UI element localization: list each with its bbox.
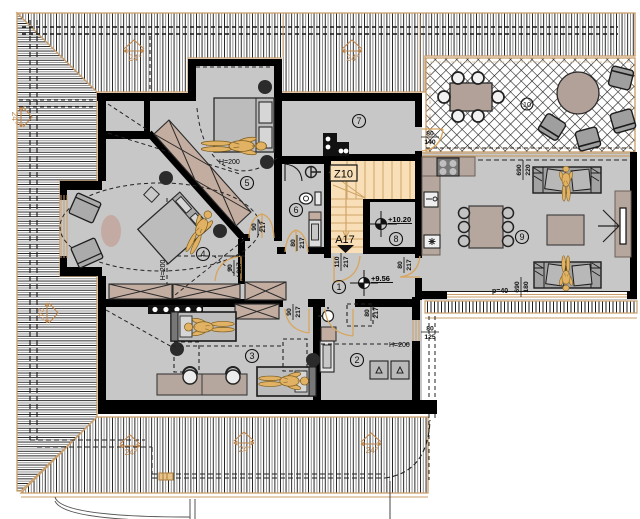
svg-text:3: 3 bbox=[249, 351, 254, 361]
svg-text:690: 690 bbox=[514, 281, 521, 293]
svg-text:H=200: H=200 bbox=[160, 259, 167, 280]
svg-text:80: 80 bbox=[426, 131, 434, 138]
svg-text:5: 5 bbox=[244, 178, 249, 188]
svg-text:220: 220 bbox=[525, 164, 532, 176]
svg-text:125: 125 bbox=[424, 334, 436, 341]
svg-text:Z10: Z10 bbox=[334, 169, 353, 181]
svg-text:9: 9 bbox=[519, 232, 524, 242]
svg-text:24°: 24° bbox=[128, 53, 142, 63]
svg-text:+9.56: +9.56 bbox=[371, 274, 390, 283]
svg-text:217: 217 bbox=[260, 221, 267, 233]
svg-text:10: 10 bbox=[523, 100, 531, 109]
svg-text:24°: 24° bbox=[346, 53, 360, 63]
svg-text:217: 217 bbox=[299, 237, 306, 249]
svg-text:24°: 24° bbox=[10, 112, 20, 125]
svg-text:217: 217 bbox=[373, 307, 380, 319]
svg-text:80: 80 bbox=[426, 326, 434, 333]
svg-text:p=40: p=40 bbox=[492, 288, 508, 295]
svg-text:217: 217 bbox=[236, 262, 243, 274]
svg-text:217: 217 bbox=[406, 259, 413, 271]
svg-text:80: 80 bbox=[397, 261, 404, 269]
svg-text:1: 1 bbox=[336, 282, 341, 292]
svg-text:24°: 24° bbox=[125, 447, 138, 457]
svg-text:H=200: H=200 bbox=[219, 159, 240, 166]
svg-text:180: 180 bbox=[523, 281, 530, 293]
svg-text:217: 217 bbox=[343, 256, 350, 268]
svg-text:2: 2 bbox=[354, 355, 359, 365]
svg-text:4: 4 bbox=[200, 249, 205, 259]
svg-text:217: 217 bbox=[295, 306, 302, 318]
svg-text:24°: 24° bbox=[239, 444, 252, 454]
svg-text:H=200: H=200 bbox=[389, 342, 410, 349]
svg-text:+10.20: +10.20 bbox=[388, 215, 411, 224]
svg-text:7: 7 bbox=[356, 116, 361, 126]
svg-text:80: 80 bbox=[290, 239, 297, 247]
svg-text:8: 8 bbox=[393, 234, 398, 244]
svg-text:80: 80 bbox=[364, 309, 371, 317]
svg-text:24°: 24° bbox=[36, 308, 46, 321]
svg-text:6: 6 bbox=[293, 205, 298, 215]
svg-text:140: 140 bbox=[424, 139, 436, 146]
svg-text:690: 690 bbox=[516, 164, 523, 176]
svg-text:90: 90 bbox=[286, 308, 293, 316]
svg-text:90: 90 bbox=[251, 223, 258, 231]
svg-text:90: 90 bbox=[227, 264, 234, 272]
svg-text:24°: 24° bbox=[366, 445, 379, 455]
svg-text:110: 110 bbox=[334, 256, 341, 267]
svg-text:A17: A17 bbox=[335, 234, 355, 246]
